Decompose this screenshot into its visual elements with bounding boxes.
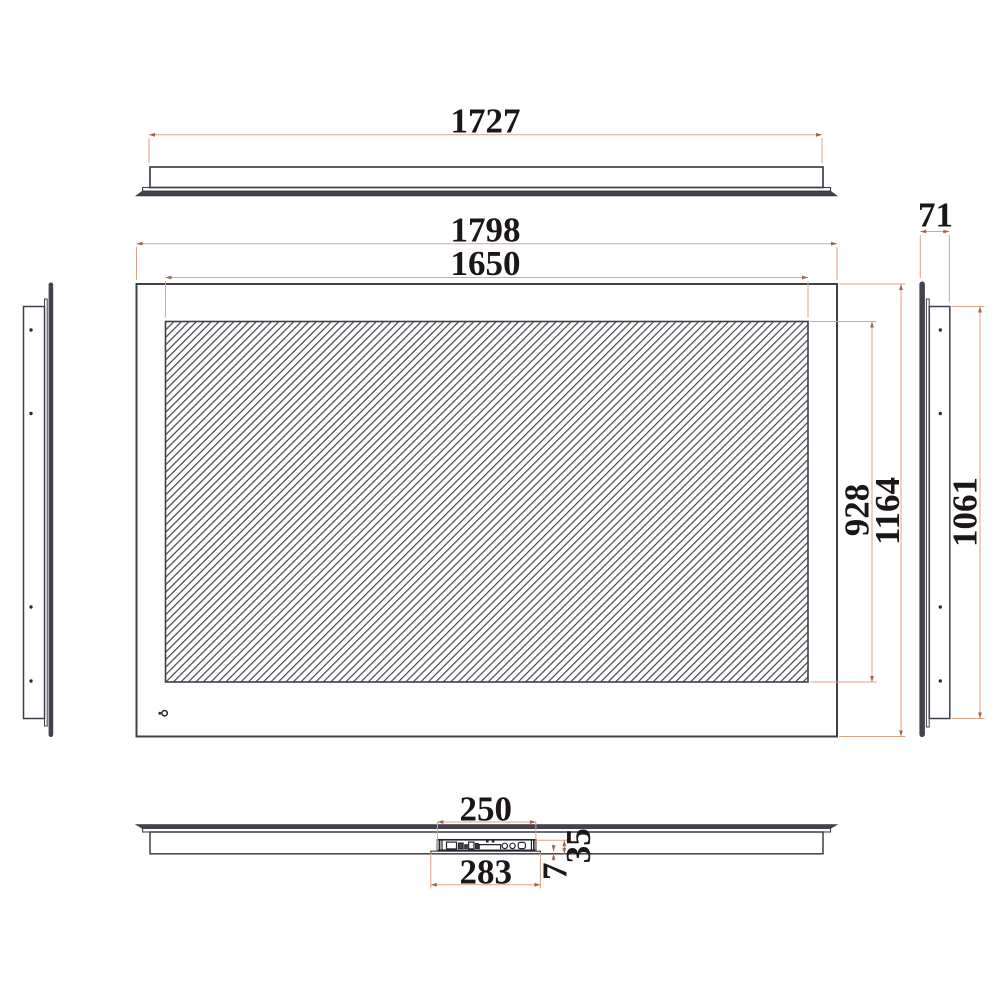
svg-text:71: 71 — [918, 196, 953, 235]
svg-text:283: 283 — [459, 853, 512, 892]
svg-text:1727: 1727 — [451, 101, 521, 140]
svg-text:1061: 1061 — [946, 477, 985, 547]
svg-text:35: 35 — [559, 828, 598, 863]
svg-text:1650: 1650 — [451, 244, 521, 283]
svg-text:7: 7 — [535, 863, 574, 881]
svg-text:250: 250 — [459, 790, 512, 829]
svg-text:1164: 1164 — [868, 477, 907, 545]
